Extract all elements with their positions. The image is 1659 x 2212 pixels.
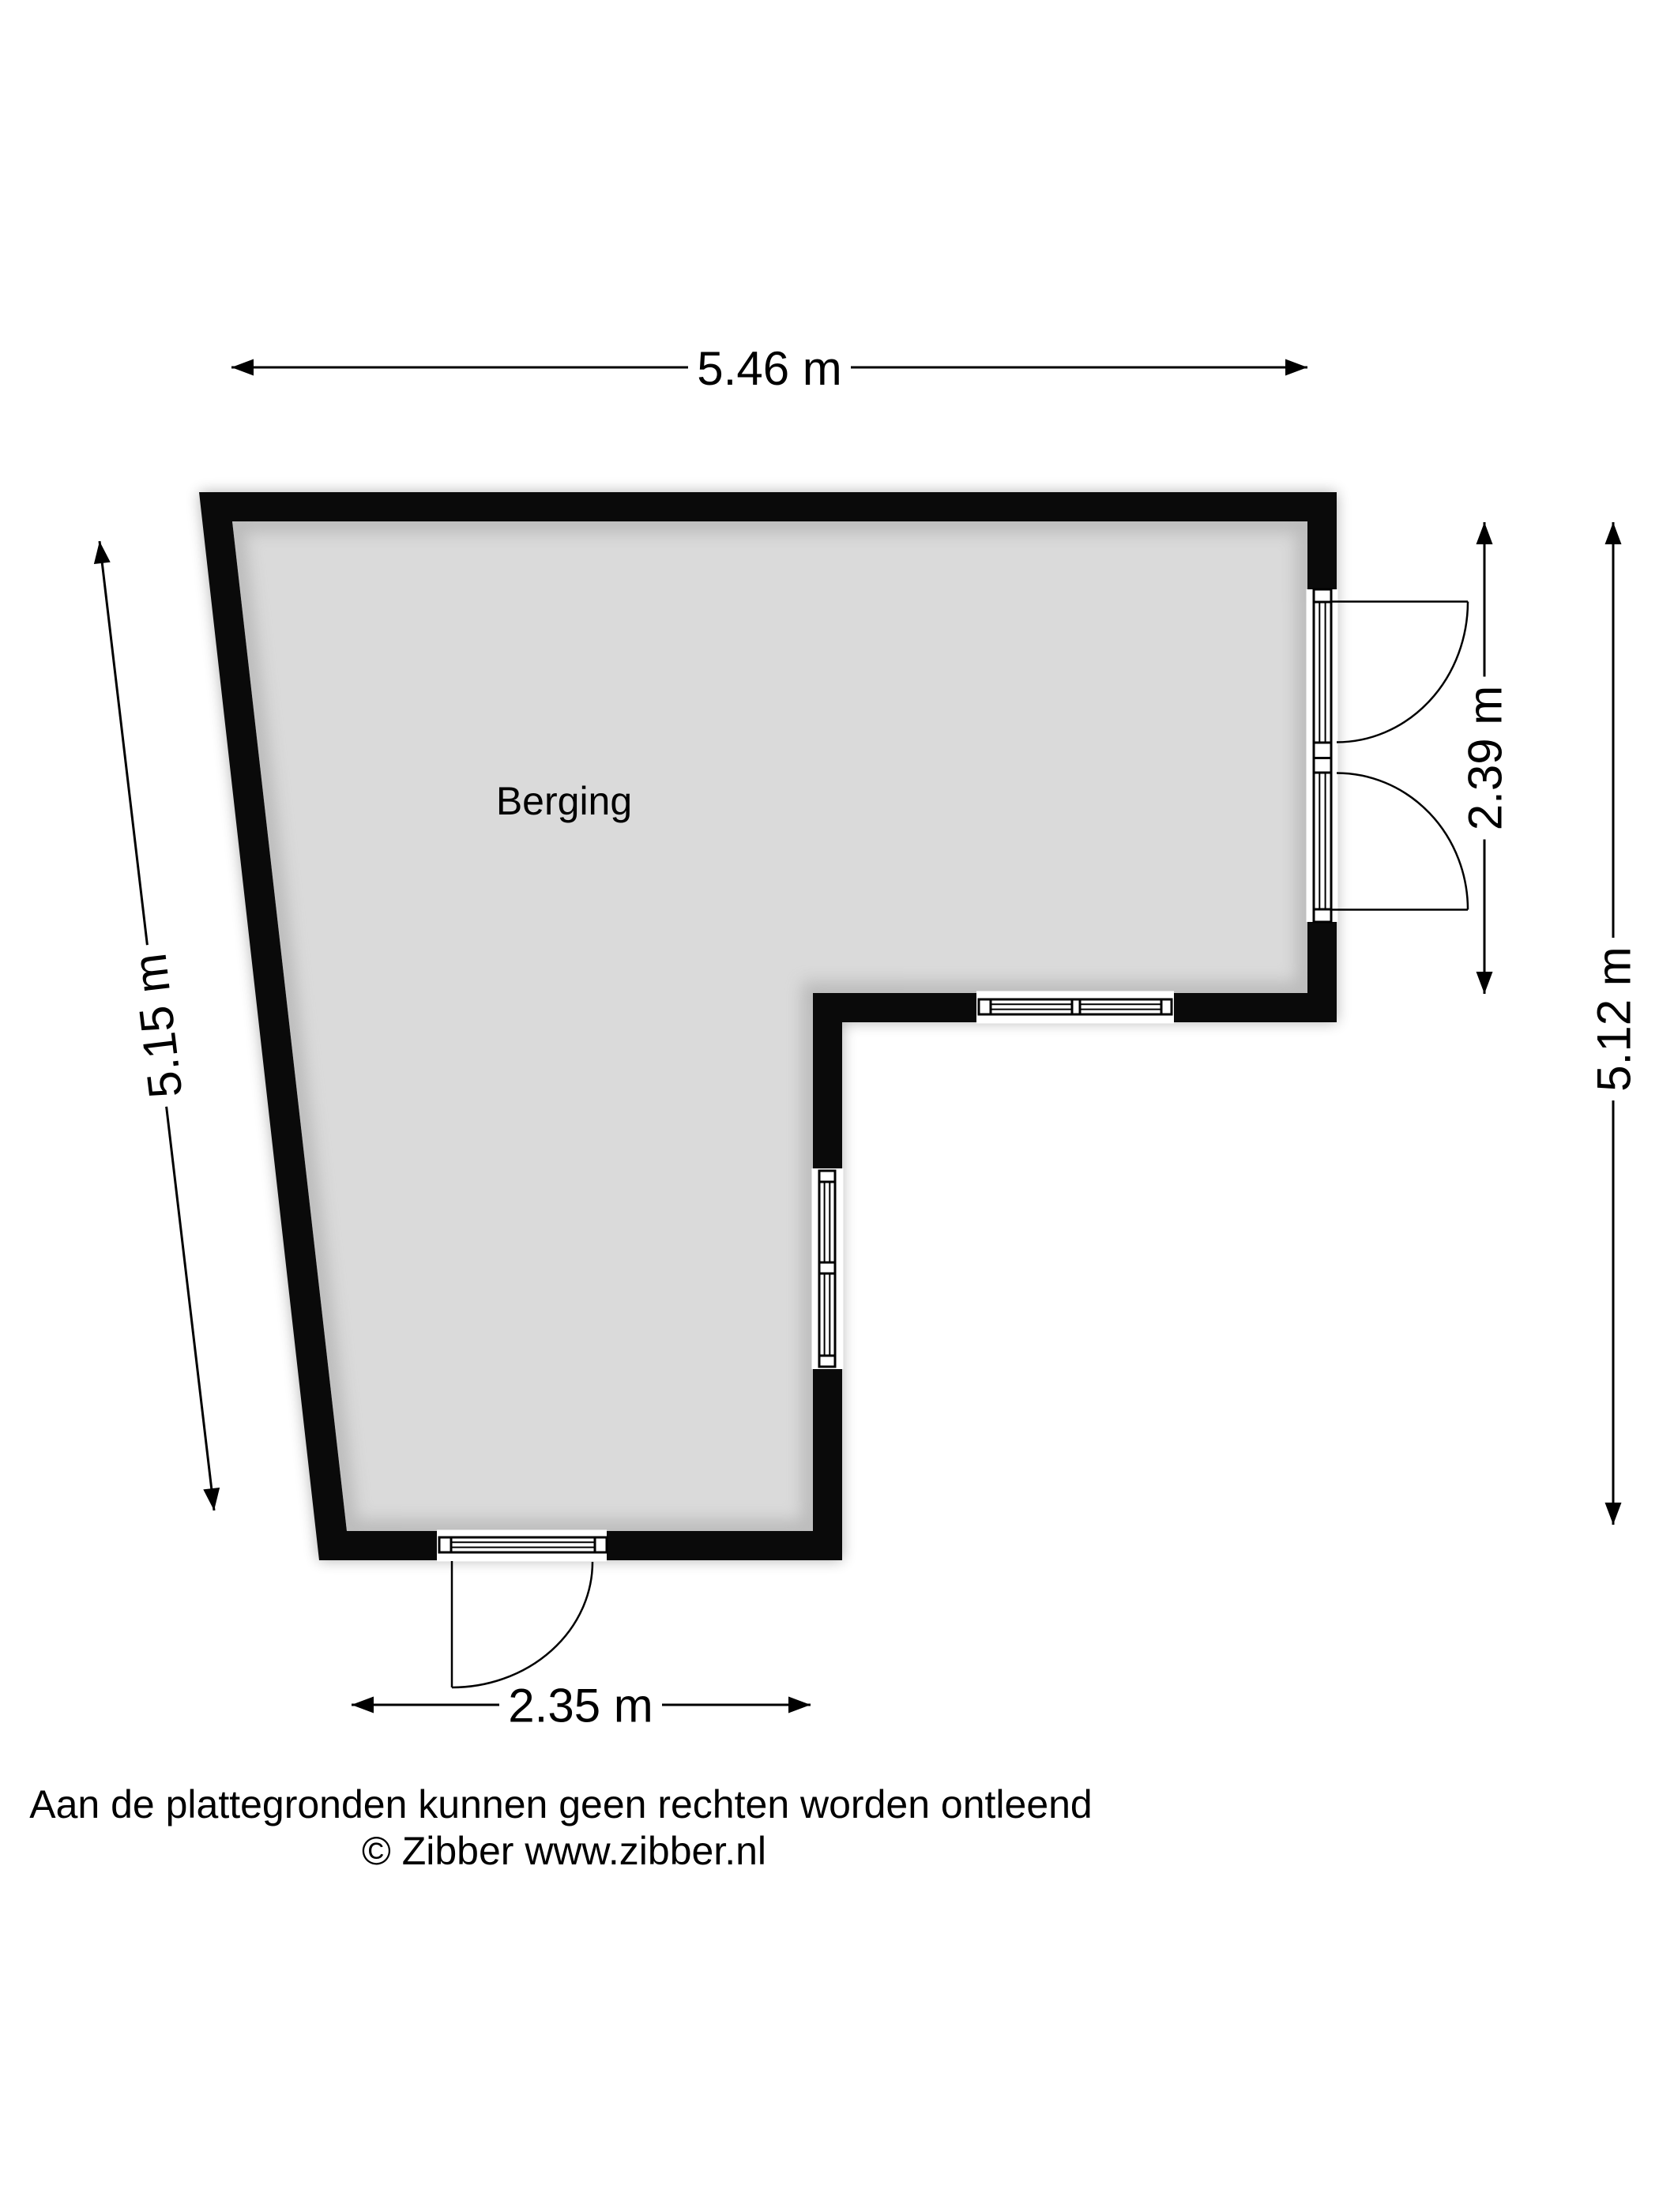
svg-text:© Zibber www.zibber.nl: © Zibber www.zibber.nl [362,1829,766,1873]
svg-text:Berging: Berging [496,779,632,823]
svg-text:2.39 m: 2.39 m [1459,686,1512,830]
svg-text:2.35 m: 2.35 m [508,1680,653,1732]
svg-text:5.12 m: 5.12 m [1588,946,1641,1091]
svg-text:5.46 m: 5.46 m [697,342,841,395]
svg-text:Aan de plattegronden kunnen ge: Aan de plattegronden kunnen geen rechten… [29,1782,1093,1826]
